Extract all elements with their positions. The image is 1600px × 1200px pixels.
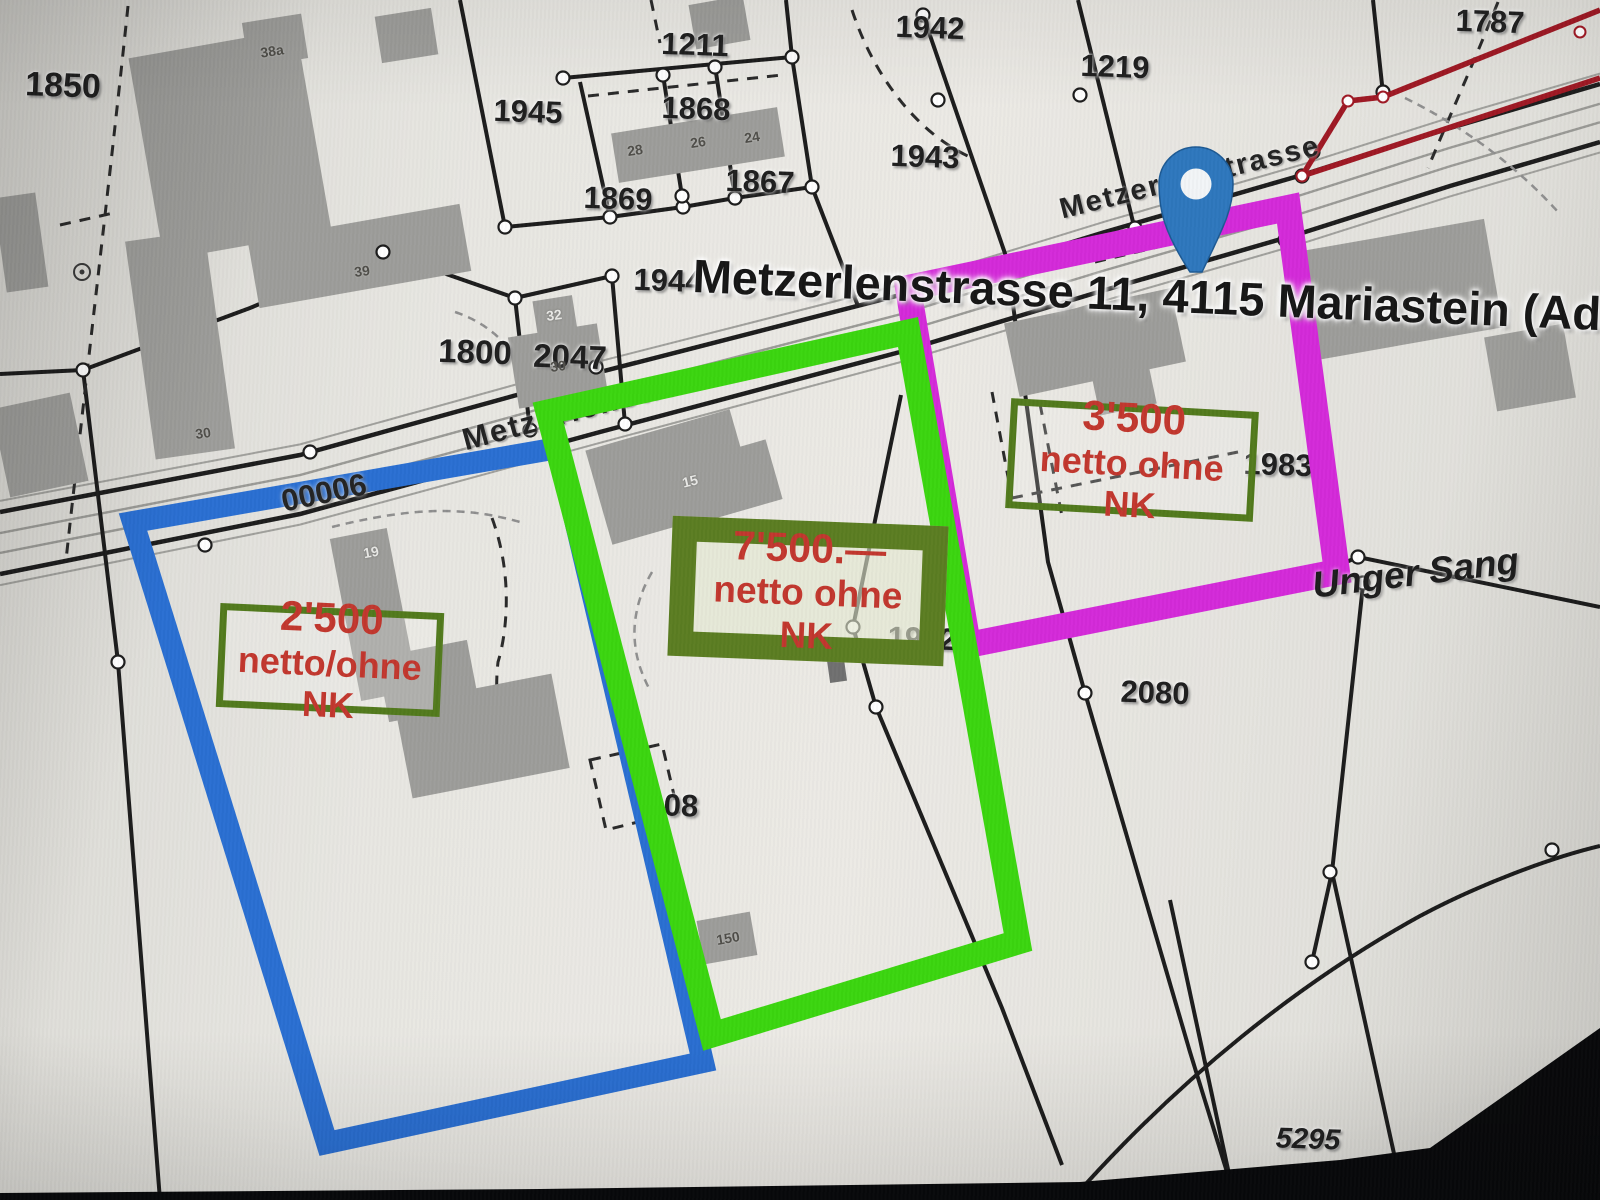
map-canvas[interactable]: 1850121119451868186918671944194319421219… <box>0 0 1600 1200</box>
screen-bezel-shape <box>0 1028 1600 1200</box>
screen-bezel <box>0 0 1600 1200</box>
map-screenshot: 1850121119451868186918671944194319421219… <box>0 0 1600 1200</box>
